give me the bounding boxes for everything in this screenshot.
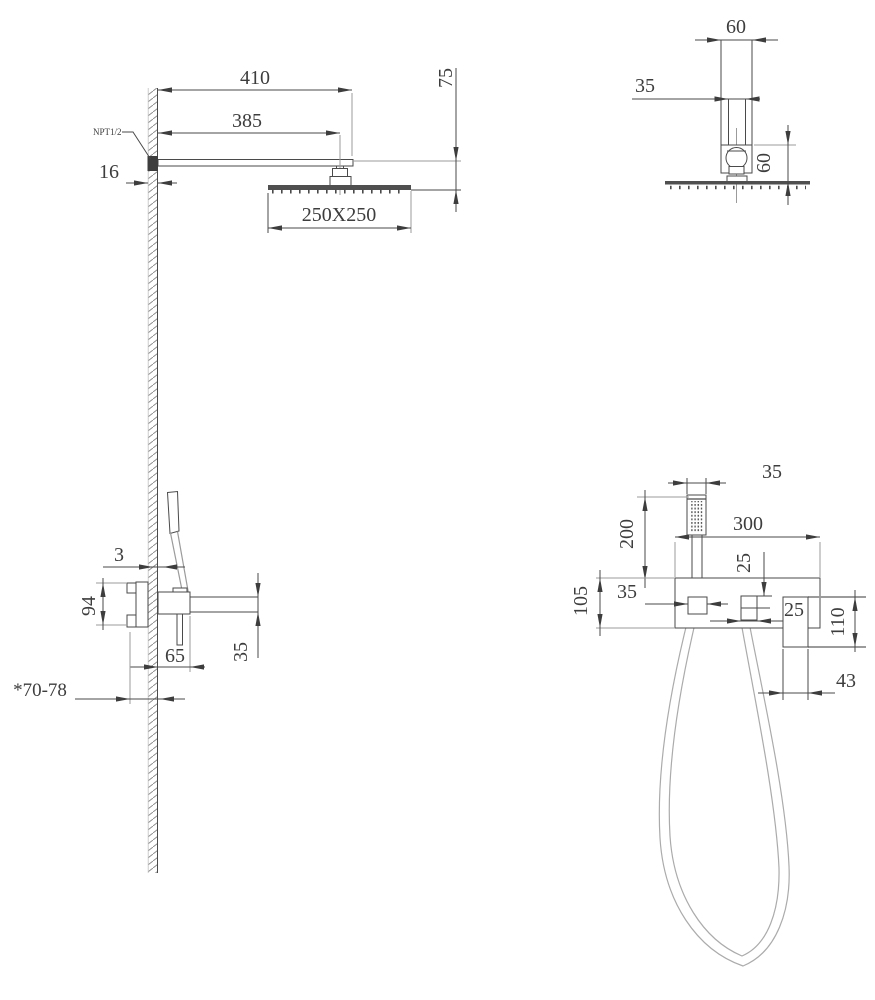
wall-section: [148, 88, 158, 873]
technical-drawing: NPT1/2 410 385: [0, 0, 875, 1000]
dim-rough-in-depth: *70-78: [13, 632, 185, 704]
dim-outlet-block-width-label: 43: [836, 670, 856, 692]
dim-head-drop-label: 75: [435, 68, 457, 88]
dim-head-size: 250X250: [268, 191, 411, 233]
dim-connector-height-label: 60: [753, 153, 775, 173]
dim-outlet-block-height: 110: [827, 590, 858, 652]
dim-outlet-top-offset-label: 25: [733, 553, 755, 573]
dim-spout-projection-label: 65: [165, 645, 185, 667]
dim-spout-height: 35: [230, 573, 261, 662]
dim-holder-width-label: 35: [617, 581, 637, 603]
dim-outlet-width-label: 25: [784, 599, 804, 621]
dim-valve-body-height: 94: [78, 578, 127, 630]
inlet-thread-callout: NPT1/2: [93, 127, 151, 159]
hand-shower-holder: [688, 597, 707, 614]
dim-arm-width-label: 60: [726, 16, 746, 38]
view-mixer-side: 3 94 65 35 *70-78: [13, 492, 261, 705]
dim-head-width-label: 35: [762, 461, 782, 483]
spout-body: [158, 588, 258, 645]
drawing-canvas: NPT1/2 410 385: [0, 0, 875, 1000]
inlet-thread-label: NPT1/2: [93, 127, 122, 137]
dim-bracket-height: 105: [570, 570, 675, 636]
arm-drop-connector: [330, 169, 351, 187]
dim-handle-wall-gap: 3: [103, 544, 185, 570]
dim-handle-wall-gap-label: 3: [114, 544, 124, 566]
dim-outlet-block-height-label: 110: [827, 607, 849, 636]
dim-arm-width: 60: [695, 16, 778, 43]
dim-arm-inner-width: 35: [632, 75, 760, 102]
dim-spout-height-label: 35: [230, 642, 252, 662]
dim-bracket-width-label: 300: [733, 513, 763, 535]
dim-wall-to-head-center-label: 385: [232, 110, 262, 132]
view-rain-shower-front: 60 35 60: [632, 16, 810, 205]
dim-outlet-block-width: 43: [758, 649, 856, 700]
dim-hand-shower-length: 200: [616, 490, 689, 588]
mixer-handle: [168, 492, 189, 596]
dim-bracket-height-label: 105: [570, 586, 592, 616]
dim-arm-length-label: 410: [240, 67, 270, 89]
hand-shower-hose: [659, 615, 789, 966]
dim-head-width: 35: [668, 461, 782, 494]
dim-head-size-label: 250X250: [302, 204, 376, 226]
in-wall-valve-body: [127, 582, 148, 627]
ball-joint-connector: [721, 145, 752, 182]
dim-wall-to-head-center: 385: [158, 110, 340, 136]
dim-head-drop: 75: [353, 68, 461, 212]
dim-arm-inner-width-label: 35: [635, 75, 655, 97]
dim-connector-height: 60: [753, 125, 796, 205]
dim-rough-in-depth-label: *70-78: [13, 680, 67, 701]
wall-inlet-fitting: [148, 156, 159, 171]
dim-wall-thickness-label: 16: [99, 161, 119, 183]
dim-hand-shower-length-label: 200: [616, 519, 638, 549]
dim-valve-body-height-label: 94: [78, 596, 100, 616]
view-hand-shower-front: 35 200 300 105: [570, 461, 866, 966]
